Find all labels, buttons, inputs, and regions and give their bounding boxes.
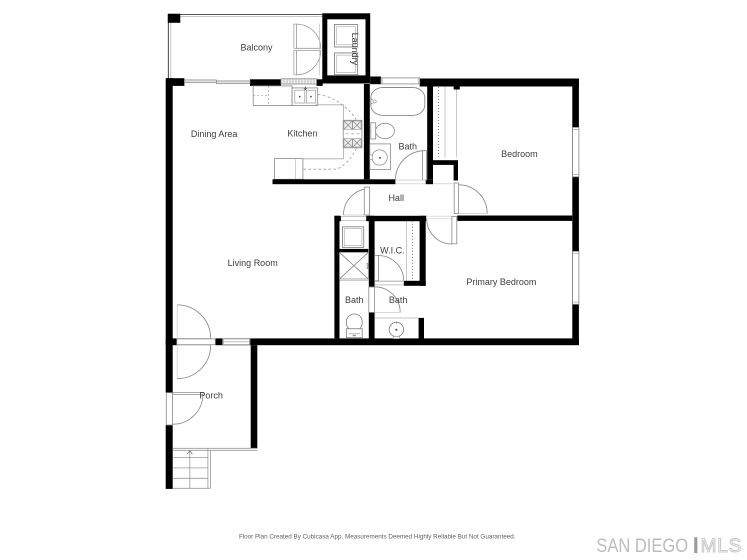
svg-text:Living Room: Living Room: [228, 258, 278, 268]
svg-text:W/H: W/H: [365, 263, 369, 270]
svg-text:MLS: MLS: [701, 536, 742, 557]
svg-text:Floor Plan Created By Cubicasa: Floor Plan Created By Cubicasa App. Meas…: [239, 533, 516, 540]
svg-text:Porch: Porch: [199, 391, 223, 401]
svg-text:Bedroom: Bedroom: [501, 149, 538, 159]
svg-text:Bath: Bath: [398, 142, 417, 152]
svg-text:Bath: Bath: [389, 295, 408, 305]
svg-text:Bath: Bath: [345, 295, 364, 305]
svg-text:Dining Area: Dining Area: [191, 129, 238, 139]
svg-text:Laundry: Laundry: [350, 33, 360, 66]
svg-text:Hall: Hall: [388, 193, 404, 203]
svg-text:SAN DIEGO: SAN DIEGO: [596, 535, 688, 556]
svg-text:Kitchen: Kitchen: [287, 129, 317, 139]
svg-text:W.I.C.: W.I.C.: [380, 245, 405, 255]
svg-text:Primary Bedroom: Primary Bedroom: [466, 277, 536, 287]
svg-text:Balcony: Balcony: [240, 43, 273, 53]
